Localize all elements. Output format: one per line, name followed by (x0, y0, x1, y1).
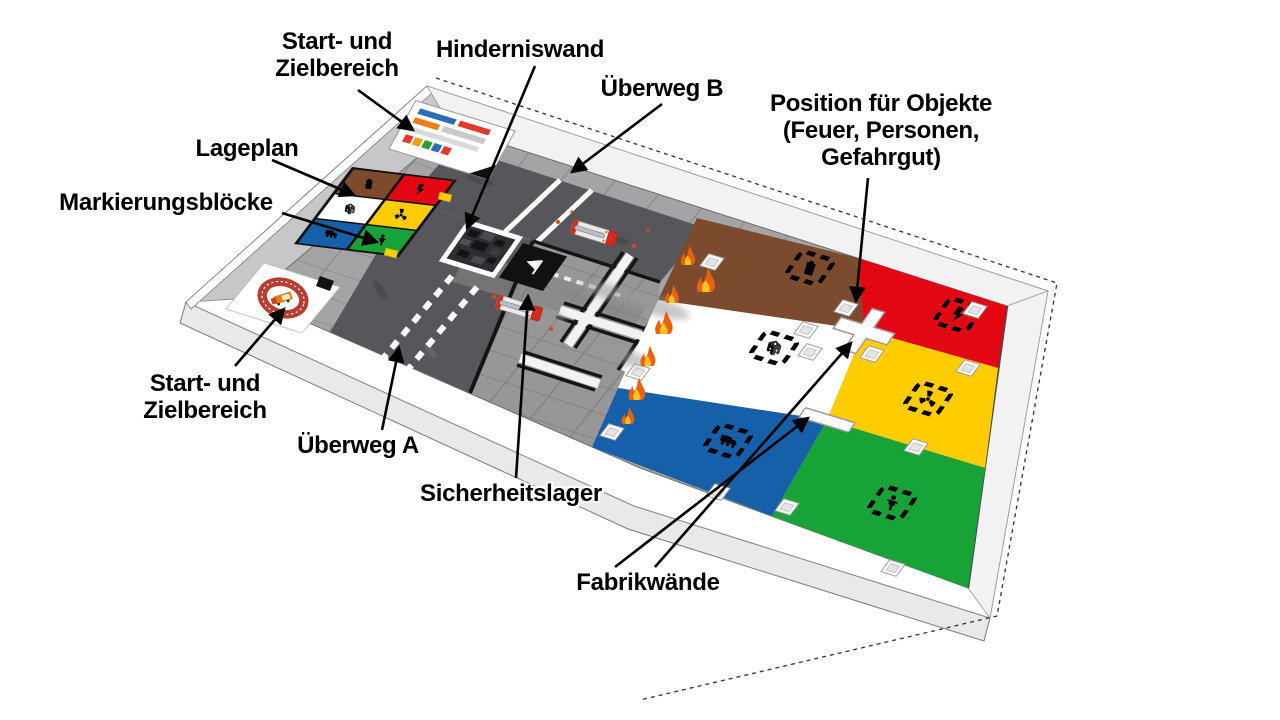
field-illustration (0, 0, 1280, 720)
label-ueberweg-a: Überweg A (297, 432, 419, 459)
label-hinderniswand: Hinderniswand (436, 36, 604, 63)
label-line: Zielbereich (143, 397, 266, 424)
label-line: Zielbereich (275, 55, 398, 82)
label-start-ziel-bottom: Start- und Zielbereich (143, 370, 266, 424)
label-start-ziel-top: Start- und Zielbereich (275, 28, 398, 82)
label-line: Start- und (275, 28, 398, 55)
label-sicherheitslager: Sicherheitslager (420, 480, 602, 507)
label-lageplan: Lageplan (196, 135, 299, 162)
label-ueberweg-b: Überweg B (601, 75, 724, 102)
label-line: Gefahrgut) (770, 144, 992, 171)
label-line: Position für Objekte (770, 90, 992, 117)
label-position-objekte: Position für Objekte (Feuer, Personen, G… (770, 90, 992, 171)
diagram-stage: Start- und Zielbereich Hinderniswand Übe… (0, 0, 1280, 720)
label-markierungsbloecke: Markierungsblöcke (59, 189, 273, 216)
label-line: (Feuer, Personen, (770, 117, 992, 144)
label-line: Start- und (143, 370, 266, 397)
label-fabrikwaende: Fabrikwände (576, 569, 719, 596)
